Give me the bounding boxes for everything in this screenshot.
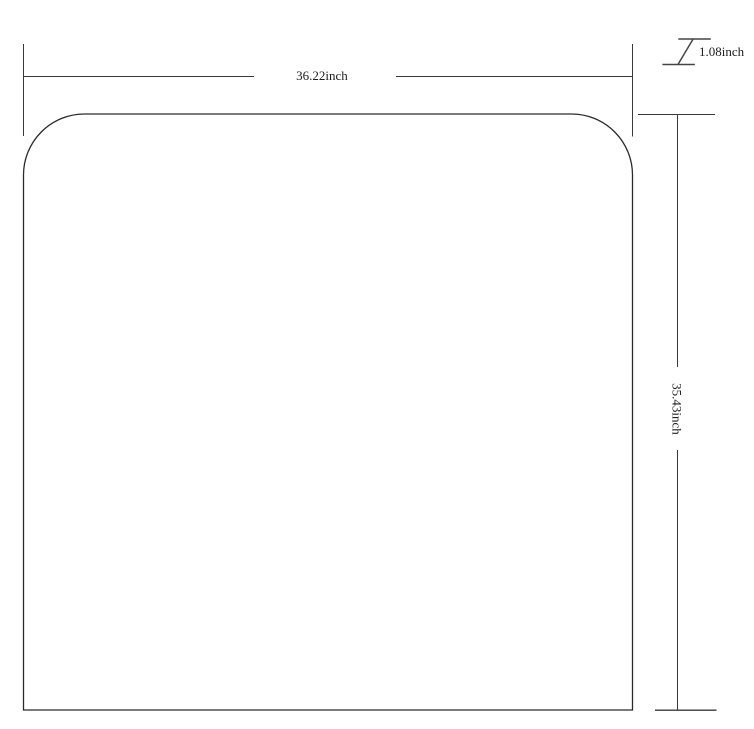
svg-text:1.08inch: 1.08inch bbox=[699, 44, 745, 59]
svg-text:35.43inch: 35.43inch bbox=[670, 383, 685, 435]
svg-text:36.22inch: 36.22inch bbox=[296, 68, 348, 83]
